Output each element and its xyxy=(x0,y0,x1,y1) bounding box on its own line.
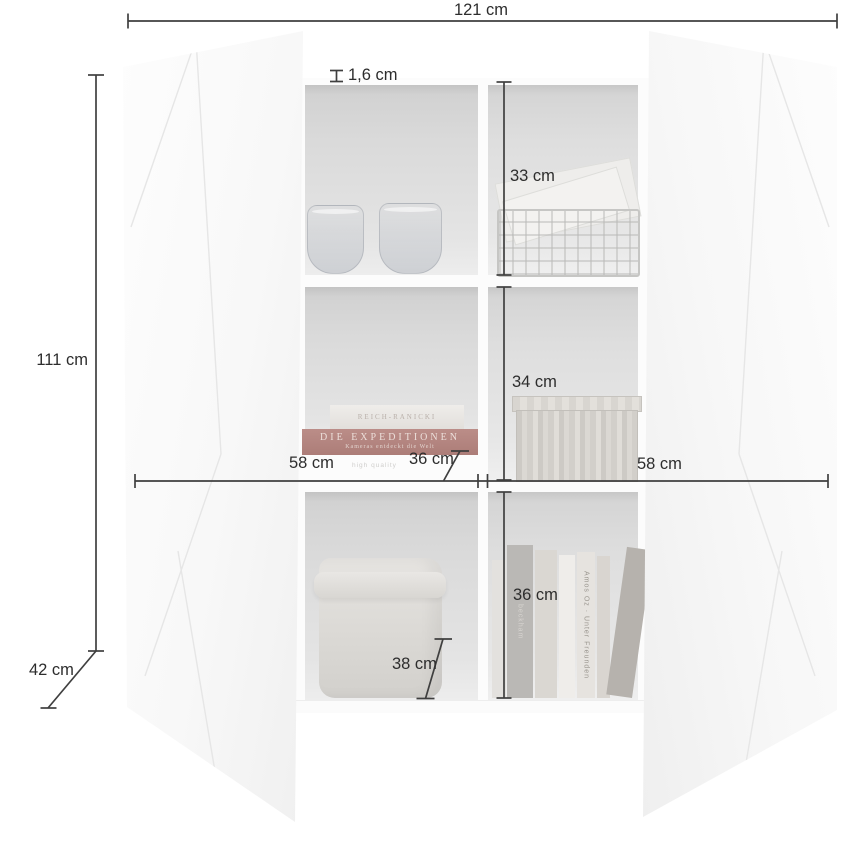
stacked-book-top-title: REICH-RANICKI xyxy=(358,413,437,421)
book-spine-label: beckham xyxy=(517,604,524,639)
cabinet-base-edge xyxy=(295,700,648,713)
wire-basket xyxy=(497,209,640,277)
standing-book xyxy=(535,550,557,698)
dim-compartment-34-label: 34 cm xyxy=(512,373,557,392)
book-spine-label: Amos Oz · Unter Freunden xyxy=(583,571,590,679)
left-door-open xyxy=(123,31,303,822)
dim-compartment-33-label: 33 cm xyxy=(510,167,555,186)
glass-tumbler-left xyxy=(307,205,364,274)
glass-tumbler-right xyxy=(379,203,442,274)
dim-shelf-depth-middle-label: 36 cm xyxy=(409,450,454,469)
standing-book xyxy=(492,560,506,698)
stacked-book-bottom-title: DIE EXPEDITIONEN xyxy=(320,433,460,443)
standing-book-beckham: beckham xyxy=(507,545,533,698)
shelf-quality-print: high quality xyxy=(352,462,397,469)
dim-compartment-36-label: 36 cm xyxy=(513,586,558,605)
dim-total-depth-label: 42 cm xyxy=(29,661,74,680)
dim-panel-thickness-label: 1,6 cm xyxy=(348,66,398,85)
standing-book xyxy=(559,555,575,698)
dim-shelf-depth-bottom-label: 38 cm xyxy=(392,655,437,674)
product-dimension-diagram: REICH-RANICKI DIE EXPEDITIONEN Kameras e… xyxy=(0,0,868,868)
dim-inner-width-right-label: 58 cm xyxy=(637,455,682,474)
paper-bag-rim xyxy=(314,572,446,598)
left-door-seam-lines xyxy=(123,31,303,822)
dim-inner-width-left-label: 58 cm xyxy=(289,454,334,473)
standing-book-amos-oz: Amos Oz · Unter Freunden xyxy=(577,552,595,698)
right-door-seam-lines xyxy=(643,31,837,817)
mosaic-box-body xyxy=(516,410,638,482)
stacked-book-top: REICH-RANICKI xyxy=(330,405,464,429)
dim-total-height-label: 111 cm xyxy=(28,351,88,370)
dim-total-width-label: 121 cm xyxy=(431,1,531,20)
right-door-open xyxy=(643,31,837,817)
